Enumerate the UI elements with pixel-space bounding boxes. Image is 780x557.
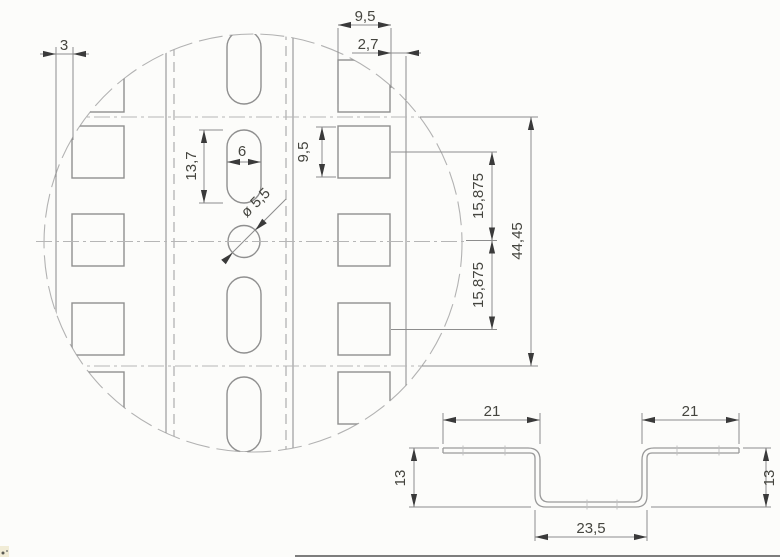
square-hole <box>338 126 390 178</box>
square-hole <box>338 214 390 266</box>
dimension-square-height-side: 9,5 <box>295 127 336 177</box>
dimension-edge-margin: 3 <box>40 37 89 177</box>
dimension-depth-left: 13 <box>392 448 531 507</box>
square-hole <box>338 60 390 112</box>
dim-label-hole-diameter: ø 5,5 <box>238 185 274 221</box>
dim-label-slot-length: 13,7 <box>183 151 200 180</box>
dim-label-channel-width: 23,5 <box>576 520 605 537</box>
dim-label-slot-width: 6 <box>238 143 246 160</box>
square-hole <box>338 372 390 424</box>
dim-label-square-height-side: 9,5 <box>295 142 312 163</box>
technical-drawing: 3 9,5 2,7 13,7 <box>0 0 780 557</box>
slot-hole <box>227 30 261 104</box>
square-hole <box>72 60 124 112</box>
profile-inner-contour <box>443 448 739 502</box>
dim-label-depth-right: 13 <box>761 470 778 487</box>
dimension-slot-width: 6 <box>227 143 261 165</box>
dim-label-depth-left: 13 <box>392 470 409 487</box>
slot-hole <box>227 277 261 353</box>
dim-label-square-width-top: 9,5 <box>355 8 376 25</box>
detail-dimensions: 3 9,5 2,7 13,7 <box>40 8 538 366</box>
rail-pattern <box>40 30 466 456</box>
dimension-depth-right: 13 <box>651 448 778 507</box>
dimension-row-pitch-lower: 15,875 <box>391 241 497 330</box>
dim-label-edge-margin: 3 <box>60 37 68 54</box>
dimension-flange-left: 21 <box>443 403 540 444</box>
dim-label-row-pitch-lower: 15,875 <box>470 262 487 308</box>
square-hole <box>338 303 390 355</box>
dimension-square-width-top: 9,5 <box>338 8 391 104</box>
detail-boundary-circle <box>44 34 462 452</box>
section-view: 21 21 13 13 <box>392 403 778 541</box>
dimension-pattern-span: 44,45 <box>420 117 538 366</box>
screen-artifact <box>0 546 9 557</box>
square-hole <box>72 214 124 266</box>
square-hole <box>72 372 124 424</box>
detail-view: 3 9,5 2,7 13,7 <box>36 8 538 456</box>
profile-end-caps <box>443 448 739 453</box>
dimension-row-pitch-upper: 15,875 <box>391 152 497 241</box>
profile-outer-contour <box>443 453 739 507</box>
dimension-flange-right: 21 <box>642 403 739 444</box>
section-dimensions: 21 21 13 13 <box>392 403 778 541</box>
dimension-slot-length: 13,7 <box>183 130 223 203</box>
dim-label-flange-left: 21 <box>484 403 501 420</box>
dim-label-edge-offset: 2,7 <box>358 36 379 53</box>
profile-tick-marks <box>463 446 719 510</box>
square-hole <box>72 303 124 355</box>
dimension-channel-width: 23,5 <box>535 510 647 541</box>
slot-hole <box>227 377 261 452</box>
dimension-edge-offset: 2,7 <box>352 36 421 100</box>
cad-drawing-page: 3 9,5 2,7 13,7 <box>0 0 780 557</box>
dim-label-row-pitch-upper: 15,875 <box>470 173 487 219</box>
square-hole <box>72 126 124 178</box>
dim-label-flange-right: 21 <box>682 403 699 420</box>
dim-label-pattern-span: 44,45 <box>509 222 526 260</box>
